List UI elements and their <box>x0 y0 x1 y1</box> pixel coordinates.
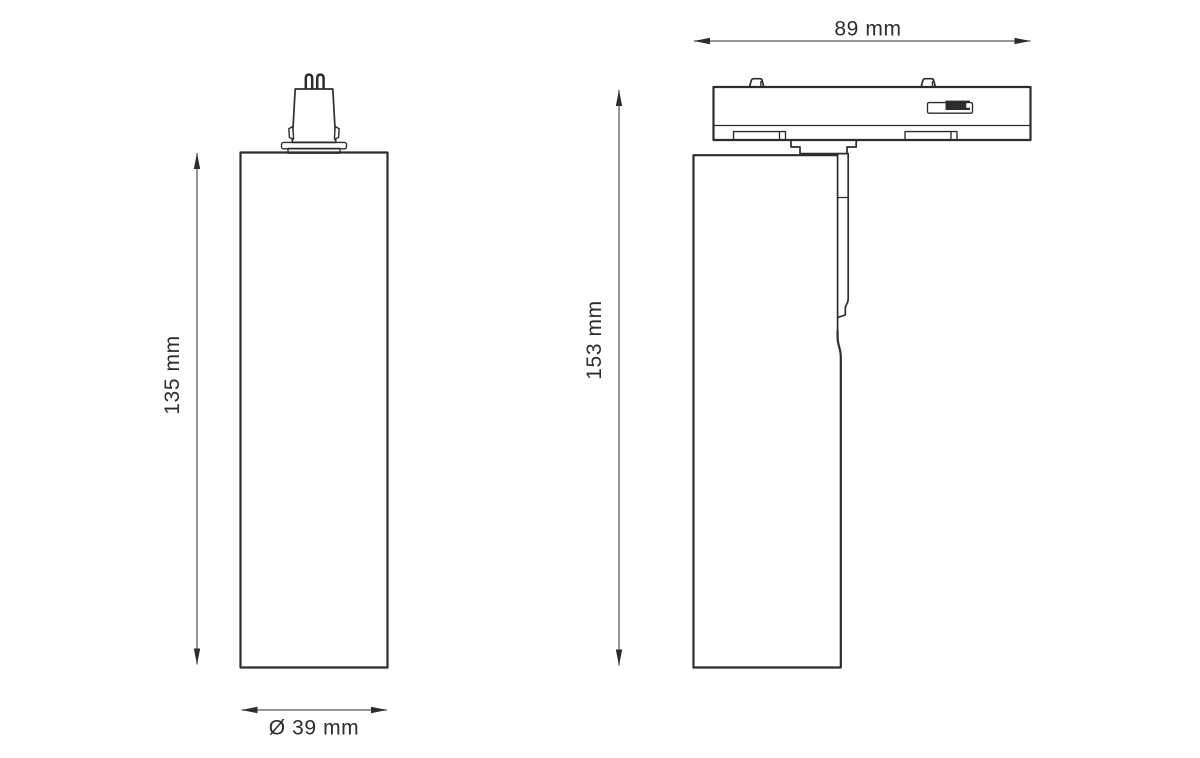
side-body-outline <box>694 155 841 667</box>
side-adapter-foot-left <box>734 132 786 140</box>
front-height-dimension-label: 135 mm <box>161 335 184 414</box>
front-connector-neck <box>292 89 336 142</box>
front-diameter-dimension-label: Ø 39 mm <box>269 717 360 740</box>
front-body-outline <box>241 153 388 668</box>
side-adapter-foot-right <box>905 132 957 140</box>
front-contact-prong-left <box>306 75 312 89</box>
dimension-drawing: 135 mm Ø 39 mm <box>0 0 1200 758</box>
front-contact-prong-right <box>317 75 323 89</box>
side-adapter-tab-left <box>750 79 764 87</box>
side-arm-outer-edge <box>838 154 849 318</box>
front-neck-clip-left <box>289 127 294 140</box>
side-adapter-tab-right <box>921 79 935 87</box>
side-width-dimension-label: 89 mm <box>834 18 901 41</box>
front-neck-clip-right <box>334 127 339 140</box>
technical-drawing-page: 135 mm Ø 39 mm <box>0 0 1200 758</box>
side-height-dimension-label: 153 mm <box>583 300 606 379</box>
side-mount-bracket <box>791 140 856 154</box>
side-view: 89 mm 153 mm <box>583 18 1031 668</box>
side-adapter-slider-knob-notch <box>966 103 970 108</box>
front-view: 135 mm Ø 39 mm <box>161 75 388 740</box>
